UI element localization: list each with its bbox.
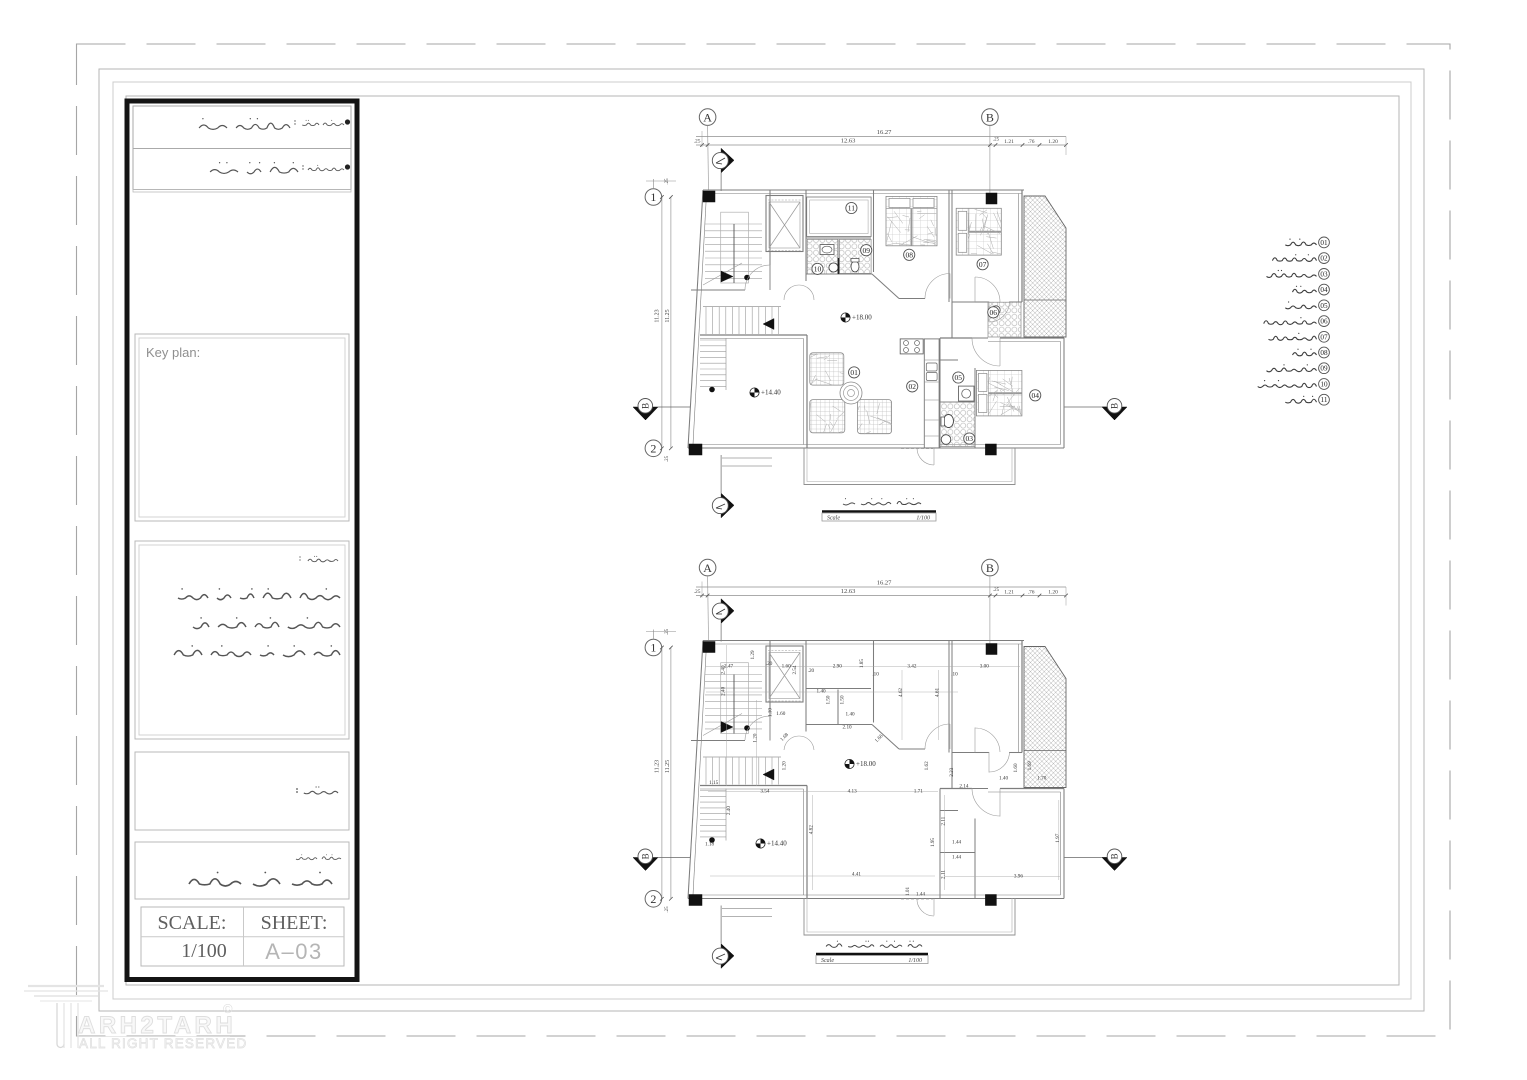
svg-text:11: 11 xyxy=(848,204,855,213)
svg-text:.25: .25 xyxy=(694,139,701,145)
svg-text:16.27: 16.27 xyxy=(877,129,892,136)
svg-text:1.44: 1.44 xyxy=(952,854,961,860)
svg-text:1.85: 1.85 xyxy=(859,659,865,668)
svg-text:1.29: 1.29 xyxy=(750,650,756,659)
svg-text:05: 05 xyxy=(955,373,963,382)
svg-text:04: 04 xyxy=(1320,286,1328,294)
svg-text:06: 06 xyxy=(990,308,998,317)
svg-text:2.23: 2.23 xyxy=(949,767,955,776)
svg-text:1.97: 1.97 xyxy=(1055,833,1061,842)
svg-text:A: A xyxy=(703,561,712,575)
svg-text:10: 10 xyxy=(1320,381,1328,389)
svg-text:ALL RIGHT RESERVED: ALL RIGHT RESERVED xyxy=(79,1036,247,1051)
svg-text:1.20: 1.20 xyxy=(1048,590,1058,596)
svg-text:1: 1 xyxy=(650,641,656,655)
svg-text:Scale: Scale xyxy=(821,958,834,964)
svg-text:2.90: 2.90 xyxy=(833,664,842,670)
svg-text:1.44: 1.44 xyxy=(916,892,925,898)
svg-text:3.96: 3.96 xyxy=(1014,874,1023,880)
svg-text:+18.00: +18.00 xyxy=(856,760,876,768)
svg-text:4.82: 4.82 xyxy=(809,825,815,834)
svg-text:1.60: 1.60 xyxy=(1013,763,1019,772)
svg-text:09: 09 xyxy=(1320,365,1328,373)
svg-text:1.95: 1.95 xyxy=(930,838,936,847)
svg-text:B: B xyxy=(986,110,994,124)
svg-text:1.20: 1.20 xyxy=(752,733,758,742)
svg-text:1.10: 1.10 xyxy=(767,708,773,717)
svg-text:1.40: 1.40 xyxy=(846,712,855,718)
svg-text:02: 02 xyxy=(908,382,916,391)
svg-text:.25: .25 xyxy=(665,178,670,185)
svg-text:07: 07 xyxy=(1320,333,1328,341)
svg-text:1.21: 1.21 xyxy=(1004,139,1014,145)
svg-text:+14.40: +14.40 xyxy=(761,389,781,397)
svg-text:1.20: 1.20 xyxy=(781,761,787,770)
svg-text:+18.00: +18.00 xyxy=(852,314,872,322)
svg-text:05: 05 xyxy=(1320,302,1328,310)
svg-text:1.69: 1.69 xyxy=(1027,761,1033,770)
svg-text:12.63: 12.63 xyxy=(841,138,856,145)
svg-text:1: 1 xyxy=(650,190,656,204)
svg-text:2: 2 xyxy=(650,442,656,456)
svg-text:2.40: 2.40 xyxy=(726,806,732,815)
svg-text:.76: .76 xyxy=(1028,139,1035,145)
svg-text:2.14: 2.14 xyxy=(959,783,968,789)
svg-text:+14.40: +14.40 xyxy=(767,840,787,848)
svg-text:06: 06 xyxy=(1320,318,1328,326)
svg-text:1.18: 1.18 xyxy=(705,842,714,848)
svg-text:4.41: 4.41 xyxy=(852,872,861,878)
svg-text:11.25: 11.25 xyxy=(665,760,671,773)
svg-text:2.54: 2.54 xyxy=(792,665,798,674)
svg-text:B: B xyxy=(986,561,994,575)
svg-text:1/100: 1/100 xyxy=(916,516,930,522)
svg-text:2.40: 2.40 xyxy=(720,686,726,695)
svg-text:©: © xyxy=(223,1001,233,1016)
svg-text:A: A xyxy=(703,110,712,124)
svg-text:1.70: 1.70 xyxy=(1037,776,1046,782)
svg-text:11.23: 11.23 xyxy=(655,309,661,322)
svg-text:B: B xyxy=(1110,403,1120,409)
svg-text:09: 09 xyxy=(862,246,870,255)
svg-text:.25: .25 xyxy=(993,138,1000,143)
svg-text:1.15: 1.15 xyxy=(709,780,718,786)
svg-text:1.62: 1.62 xyxy=(924,761,930,770)
svg-text:1.60: 1.60 xyxy=(782,664,791,670)
svg-text:Scale: Scale xyxy=(827,516,840,522)
svg-text:4.62: 4.62 xyxy=(898,688,904,697)
svg-text:.25: .25 xyxy=(665,628,670,635)
svg-text:1.01: 1.01 xyxy=(905,887,911,896)
svg-text:.20: .20 xyxy=(808,668,815,674)
svg-text:1.71: 1.71 xyxy=(914,788,923,794)
svg-text:2.11: 2.11 xyxy=(941,816,947,825)
svg-text:1.40: 1.40 xyxy=(999,776,1008,782)
svg-text:2.11: 2.11 xyxy=(941,870,947,879)
svg-text:03: 03 xyxy=(1320,270,1328,278)
svg-text:16.27: 16.27 xyxy=(877,580,892,587)
svg-text:.10: .10 xyxy=(951,672,958,678)
svg-text:1.50: 1.50 xyxy=(840,695,846,704)
svg-text:.25: .25 xyxy=(665,455,670,462)
svg-text:3.42: 3.42 xyxy=(907,664,916,670)
svg-text:07: 07 xyxy=(979,260,987,269)
svg-text:08: 08 xyxy=(1320,349,1328,357)
svg-text:3.00: 3.00 xyxy=(980,664,989,670)
svg-text:02: 02 xyxy=(1320,255,1328,263)
svg-text:04: 04 xyxy=(1031,391,1039,400)
svg-text:B: B xyxy=(1110,853,1120,859)
svg-text:2.10: 2.10 xyxy=(843,725,852,731)
svg-text:11.23: 11.23 xyxy=(655,760,661,773)
svg-text:1.44: 1.44 xyxy=(952,840,961,846)
svg-text:A–03: A–03 xyxy=(265,939,322,964)
svg-text:1/100: 1/100 xyxy=(908,958,922,964)
svg-text:.76: .76 xyxy=(1028,590,1035,596)
svg-text:ARH2TARH: ARH2TARH xyxy=(78,1012,236,1039)
svg-text:.25: .25 xyxy=(665,906,670,913)
svg-text:.20: .20 xyxy=(766,661,773,667)
svg-text:4.13: 4.13 xyxy=(848,788,857,794)
svg-text:B: B xyxy=(640,403,650,409)
svg-text:SHEET:: SHEET: xyxy=(261,912,328,934)
svg-text:08: 08 xyxy=(905,250,913,259)
svg-text:11: 11 xyxy=(1321,396,1328,404)
svg-text:1.50: 1.50 xyxy=(826,695,832,704)
svg-text:SCALE:: SCALE: xyxy=(158,912,227,934)
svg-text:1.60: 1.60 xyxy=(776,711,785,717)
svg-text:4.61: 4.61 xyxy=(935,688,941,697)
svg-text:01: 01 xyxy=(850,368,858,377)
svg-text:11.25: 11.25 xyxy=(665,309,671,322)
svg-text:B: B xyxy=(640,853,650,859)
svg-text:1.40: 1.40 xyxy=(817,689,826,695)
svg-text:1.20: 1.20 xyxy=(1048,139,1058,145)
svg-text:01: 01 xyxy=(1320,239,1328,247)
svg-text:1/100: 1/100 xyxy=(181,940,227,962)
svg-text:.25: .25 xyxy=(694,589,701,595)
svg-text:2.40: 2.40 xyxy=(720,665,726,674)
svg-text:.25: .25 xyxy=(993,588,1000,593)
svg-text:10: 10 xyxy=(814,265,822,274)
svg-text:12.63: 12.63 xyxy=(841,588,856,595)
svg-text:3.54: 3.54 xyxy=(760,788,769,794)
svg-text:1.21: 1.21 xyxy=(1004,590,1014,596)
svg-text:2: 2 xyxy=(650,892,656,906)
svg-text:.10: .10 xyxy=(872,672,879,678)
svg-text:Key plan:: Key plan: xyxy=(146,345,200,360)
svg-text:03: 03 xyxy=(966,434,974,443)
